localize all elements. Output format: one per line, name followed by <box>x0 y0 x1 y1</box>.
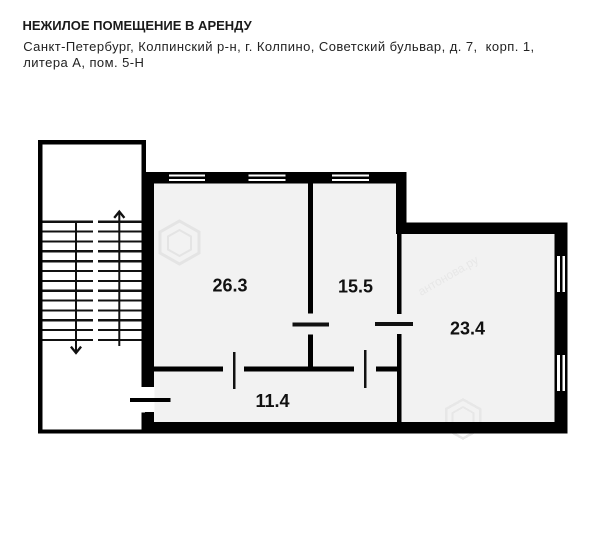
svg-text:23.4: 23.4 <box>450 319 485 339</box>
svg-text:15.5: 15.5 <box>338 277 373 297</box>
svg-text:26.3: 26.3 <box>212 275 247 295</box>
svg-text:11.4: 11.4 <box>255 391 289 411</box>
